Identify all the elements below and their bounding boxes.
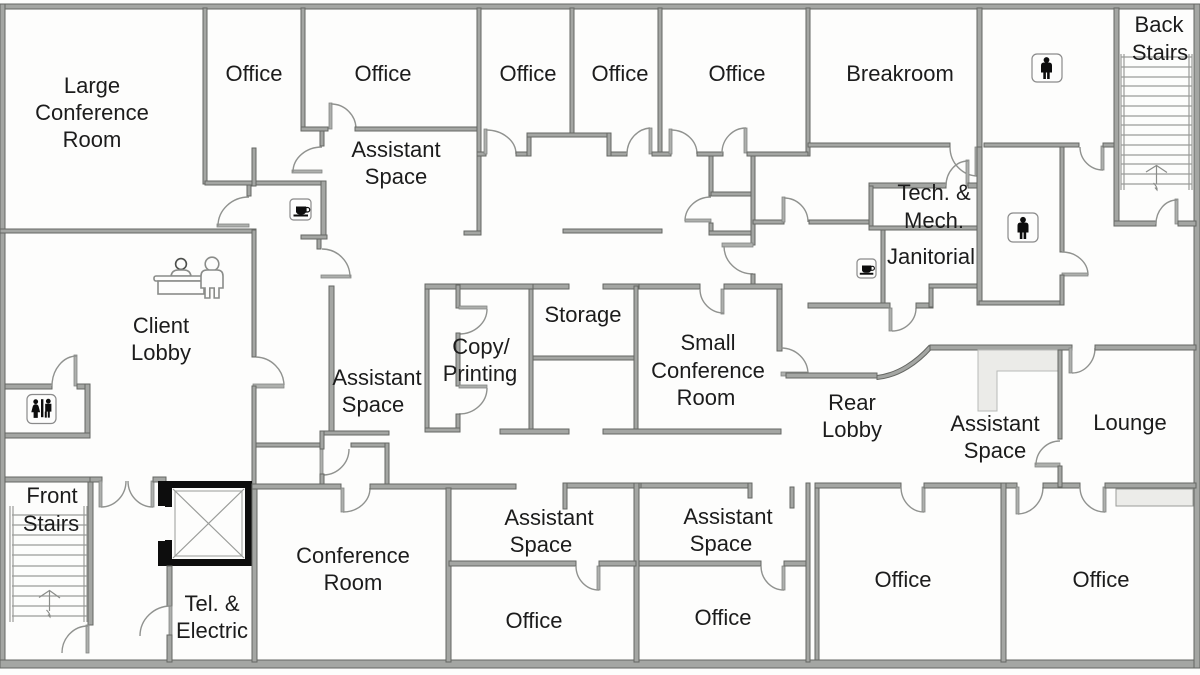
- svg-text:Assistant: Assistant: [683, 504, 772, 529]
- svg-text:Assistant: Assistant: [950, 411, 1039, 436]
- svg-text:Office: Office: [225, 61, 282, 86]
- svg-text:Tel. &: Tel. &: [184, 591, 239, 616]
- svg-text:Space: Space: [510, 532, 572, 557]
- svg-text:Stairs: Stairs: [23, 511, 79, 536]
- svg-text:Office: Office: [354, 61, 411, 86]
- svg-text:Stairs: Stairs: [1132, 40, 1188, 65]
- svg-text:Conference: Conference: [296, 543, 410, 568]
- svg-text:Mech.: Mech.: [904, 208, 964, 233]
- svg-text:Small: Small: [680, 330, 735, 355]
- svg-text:Office: Office: [499, 61, 556, 86]
- svg-text:Client: Client: [133, 313, 189, 338]
- svg-text:Lounge: Lounge: [1093, 410, 1166, 435]
- svg-text:Office: Office: [694, 605, 751, 630]
- svg-text:Assistant: Assistant: [351, 137, 440, 162]
- svg-text:Office: Office: [874, 567, 931, 592]
- svg-text:Storage: Storage: [544, 302, 621, 327]
- svg-text:Tech. &: Tech. &: [897, 180, 971, 205]
- svg-text:Room: Room: [324, 570, 383, 595]
- svg-text:Conference: Conference: [35, 100, 149, 125]
- svg-text:Space: Space: [964, 438, 1026, 463]
- svg-text:Electric: Electric: [176, 618, 248, 643]
- svg-text:Room: Room: [63, 127, 122, 152]
- svg-text:Office: Office: [708, 61, 765, 86]
- svg-text:Assistant: Assistant: [504, 505, 593, 530]
- svg-text:Rear: Rear: [828, 390, 876, 415]
- svg-text:Large: Large: [64, 73, 120, 98]
- svg-text:Office: Office: [591, 61, 648, 86]
- svg-text:Room: Room: [677, 385, 736, 410]
- svg-text:Back: Back: [1135, 12, 1185, 37]
- svg-text:Lobby: Lobby: [131, 340, 191, 365]
- svg-text:Janitorial: Janitorial: [887, 244, 975, 269]
- svg-text:Front: Front: [26, 483, 77, 508]
- svg-text:Lobby: Lobby: [822, 417, 882, 442]
- svg-text:Breakroom: Breakroom: [846, 61, 954, 86]
- svg-text:Printing: Printing: [443, 361, 518, 386]
- svg-text:Office: Office: [505, 608, 562, 633]
- svg-text:Office: Office: [1072, 567, 1129, 592]
- svg-text:Conference: Conference: [651, 358, 765, 383]
- svg-text:Copy/: Copy/: [452, 334, 510, 359]
- svg-text:Space: Space: [365, 164, 427, 189]
- svg-text:Space: Space: [690, 531, 752, 556]
- svg-text:Assistant: Assistant: [332, 365, 421, 390]
- svg-text:Space: Space: [342, 392, 404, 417]
